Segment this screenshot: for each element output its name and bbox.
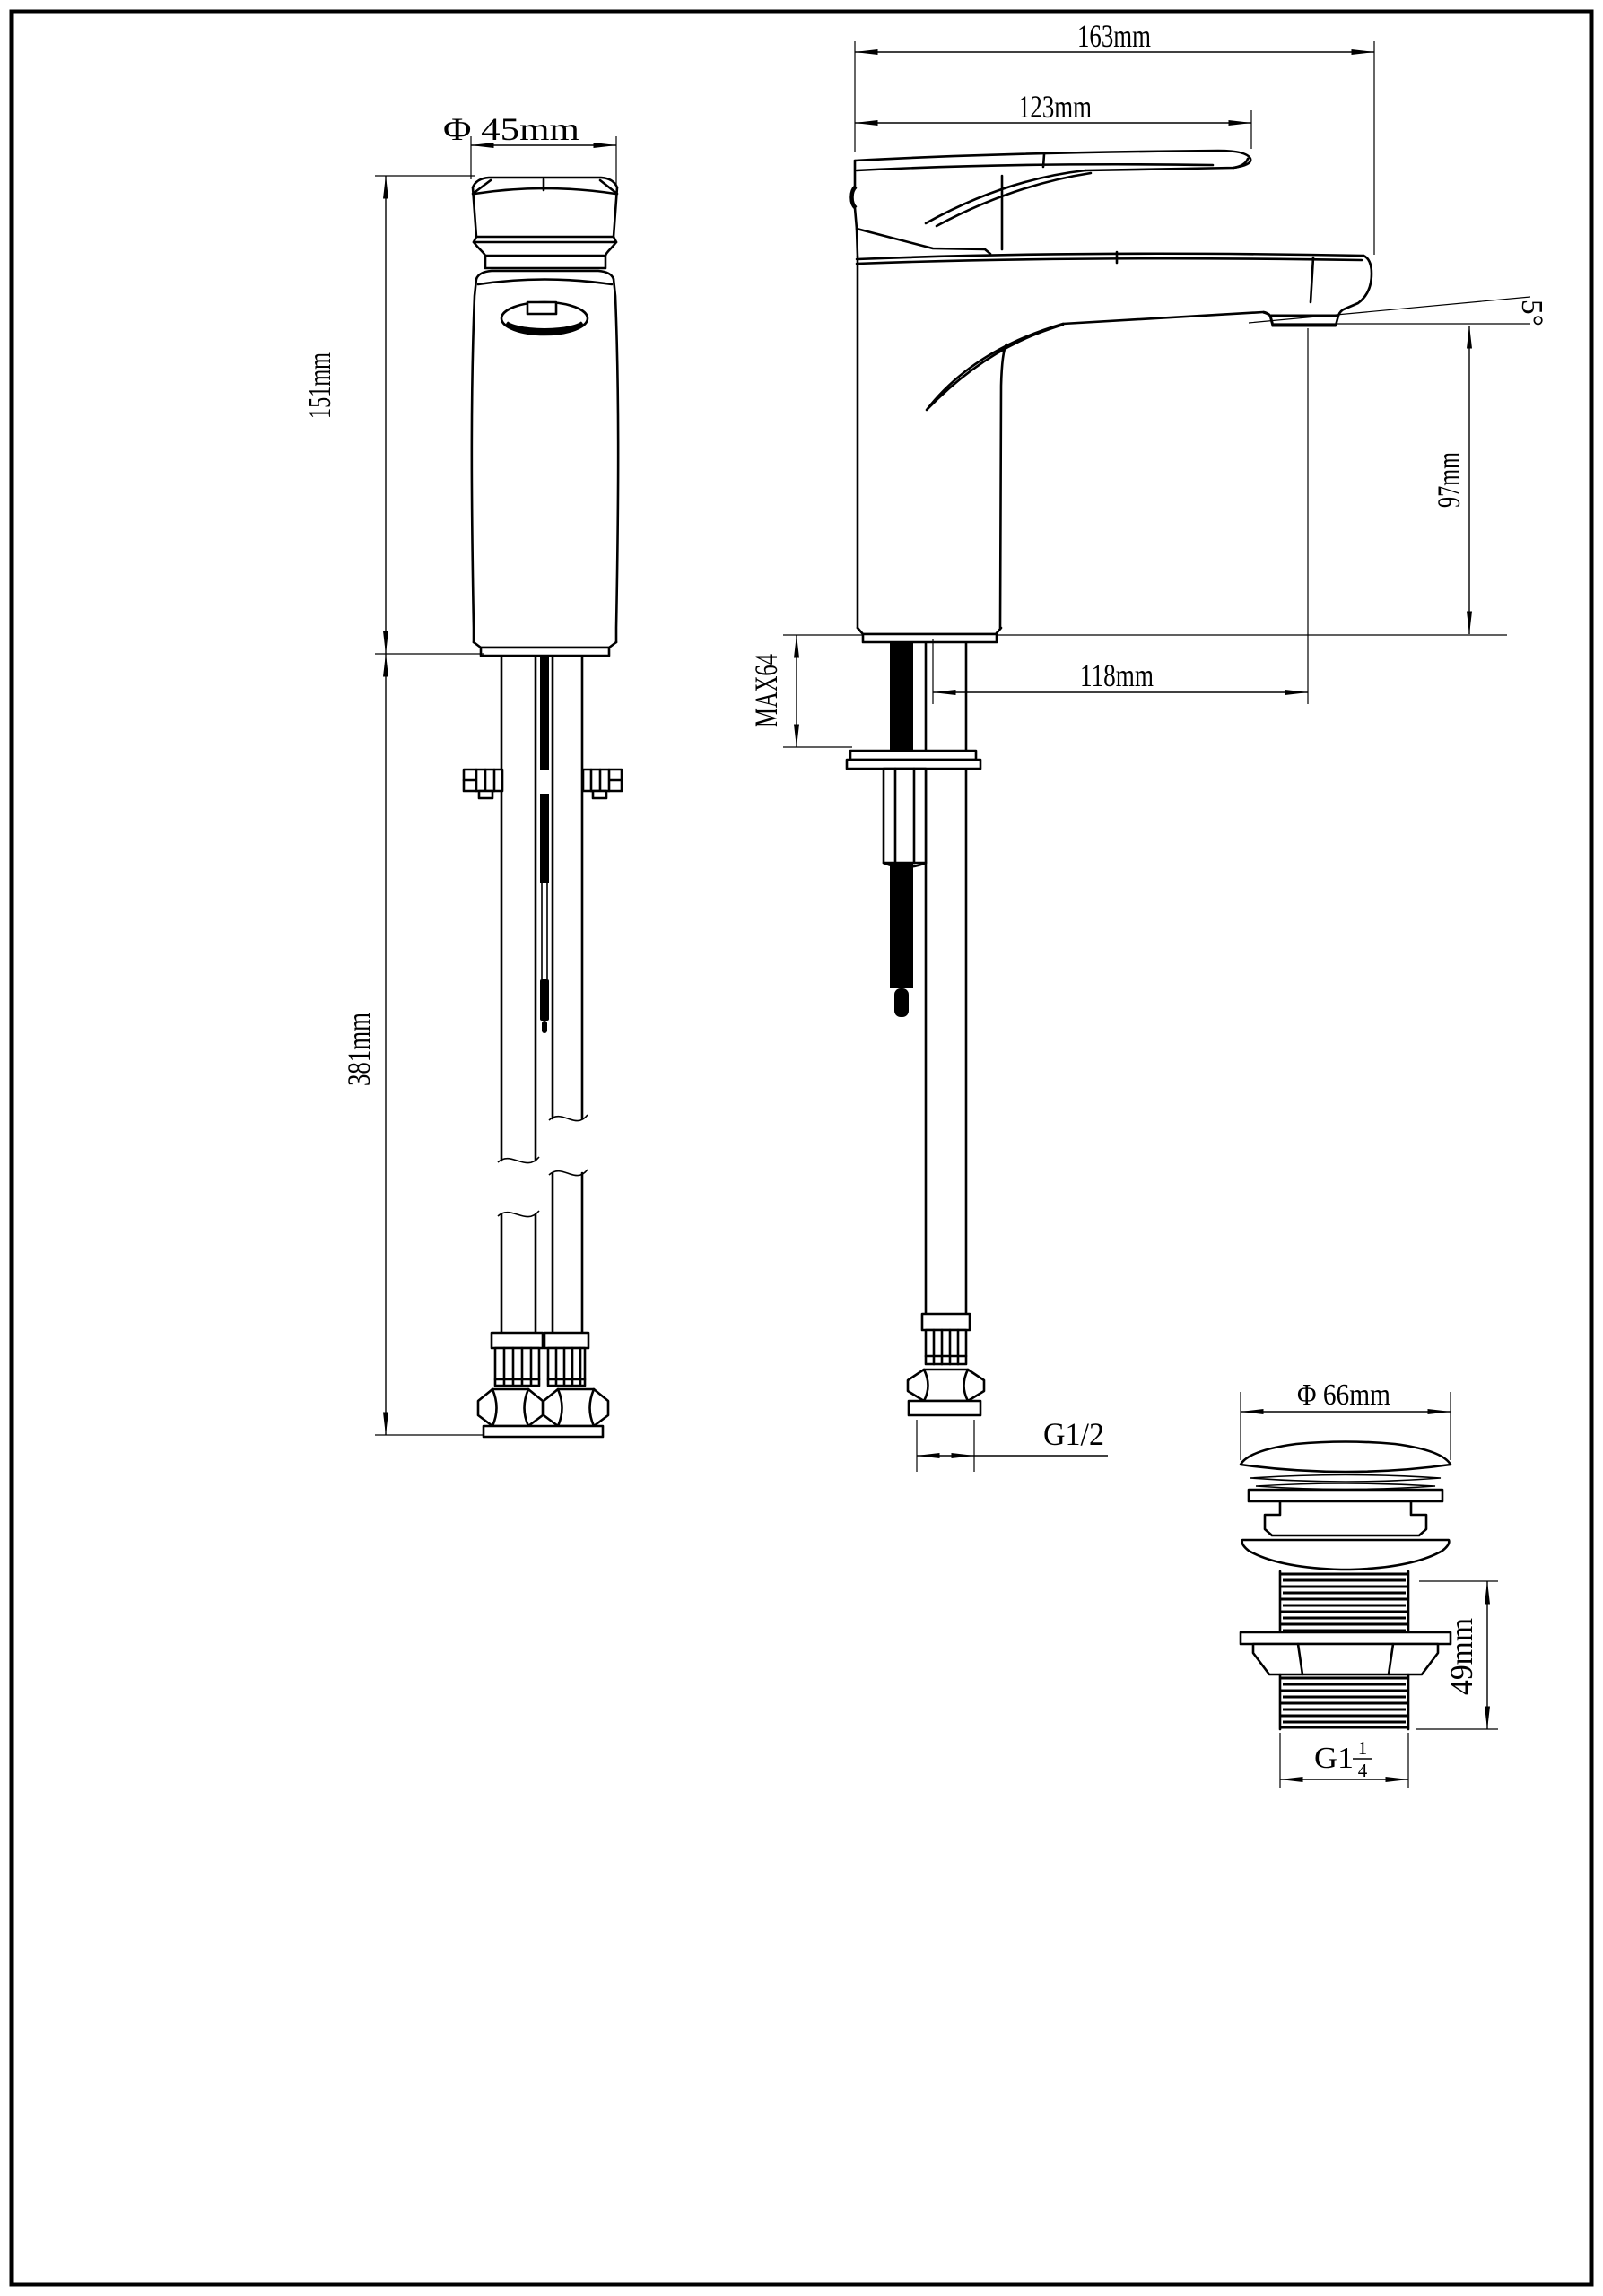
dim-drain-thread-size: G1 1 4 (1314, 1737, 1372, 1781)
drain-thread-numerator: 1 (1358, 1737, 1368, 1759)
front-threaded-stud-lower (890, 863, 913, 988)
dim-max-mounting: MAX64 (748, 654, 784, 727)
side-hex-nut-right (544, 1389, 608, 1426)
side-hex-nut-left (478, 1389, 543, 1426)
front-body-spout (857, 176, 1372, 642)
drain-basin-flange (1242, 1540, 1450, 1570)
front-threaded-stud-upper (890, 642, 913, 751)
drain-neck (1265, 1501, 1426, 1535)
front-nut-washer (909, 1401, 980, 1415)
dim-total-length: 163mm (1077, 18, 1151, 54)
drain-cap-rings (1250, 1475, 1441, 1490)
front-base-plate (863, 634, 997, 642)
front-hex-nut (908, 1370, 984, 1401)
technical-drawing: Φ 45mm 151mm 381mm 163mm 123mm 5° 97mm 1… (0, 0, 1603, 2296)
drain-thread-lower (1280, 1674, 1408, 1729)
angle-reference-lines (1249, 297, 1530, 324)
front-spout-tip (1336, 256, 1372, 326)
drain-hex-nut (1253, 1644, 1438, 1674)
side-hose-connectors (478, 1333, 608, 1437)
front-mounting-nut (884, 769, 926, 863)
side-view (464, 178, 622, 1437)
dim-body-height: 151mm (301, 352, 337, 419)
drawing-page: Φ 45mm 151mm 381mm 163mm 123mm 5° 97mm 1… (0, 0, 1603, 2296)
drain-view (1241, 1442, 1451, 1730)
side-nut-washer (484, 1426, 603, 1437)
dim-spout-reach: 118mm (1080, 657, 1154, 693)
front-spout-underside (1063, 312, 1263, 324)
front-supply-hose (926, 642, 966, 1314)
dim-drain-cap-diameter: Φ 66mm (1297, 1378, 1390, 1412)
front-body-right-edge (1000, 344, 1006, 628)
hose-break-symbol-right (549, 1115, 588, 1176)
drain-thread-prefix: G1 (1314, 1742, 1354, 1775)
drain-washer (1241, 1632, 1451, 1644)
dim-hose-length: 381mm (341, 1013, 377, 1086)
drain-flange-plate (1249, 1490, 1442, 1501)
front-hose-connector (908, 1314, 984, 1415)
side-pocket-notch (527, 302, 556, 314)
side-handle (473, 178, 617, 268)
dim-handle-length: 123mm (1018, 89, 1092, 125)
front-lever-handle (852, 151, 1251, 257)
dim-spout-angle: 5° (1515, 300, 1548, 326)
drain-cap (1241, 1442, 1451, 1473)
page-border (12, 12, 1591, 2284)
front-spout-curve (927, 324, 1063, 410)
drain-thread-upper (1280, 1571, 1408, 1632)
side-body (472, 271, 618, 656)
dim-drain-thread-length: 49mm (1443, 1618, 1479, 1695)
front-washer (850, 751, 976, 760)
dim-spout-height: 97mm (1431, 452, 1467, 508)
side-base-plate (481, 648, 609, 656)
dim-hose-thread: G1/2 (1043, 1416, 1104, 1452)
front-view (847, 151, 1372, 1415)
dim-handle-diameter: Φ 45mm (443, 111, 579, 147)
drain-thread-denominator: 4 (1358, 1760, 1368, 1781)
hose-break-symbol-left (498, 1157, 539, 1217)
side-threaded-stud (540, 656, 549, 1033)
